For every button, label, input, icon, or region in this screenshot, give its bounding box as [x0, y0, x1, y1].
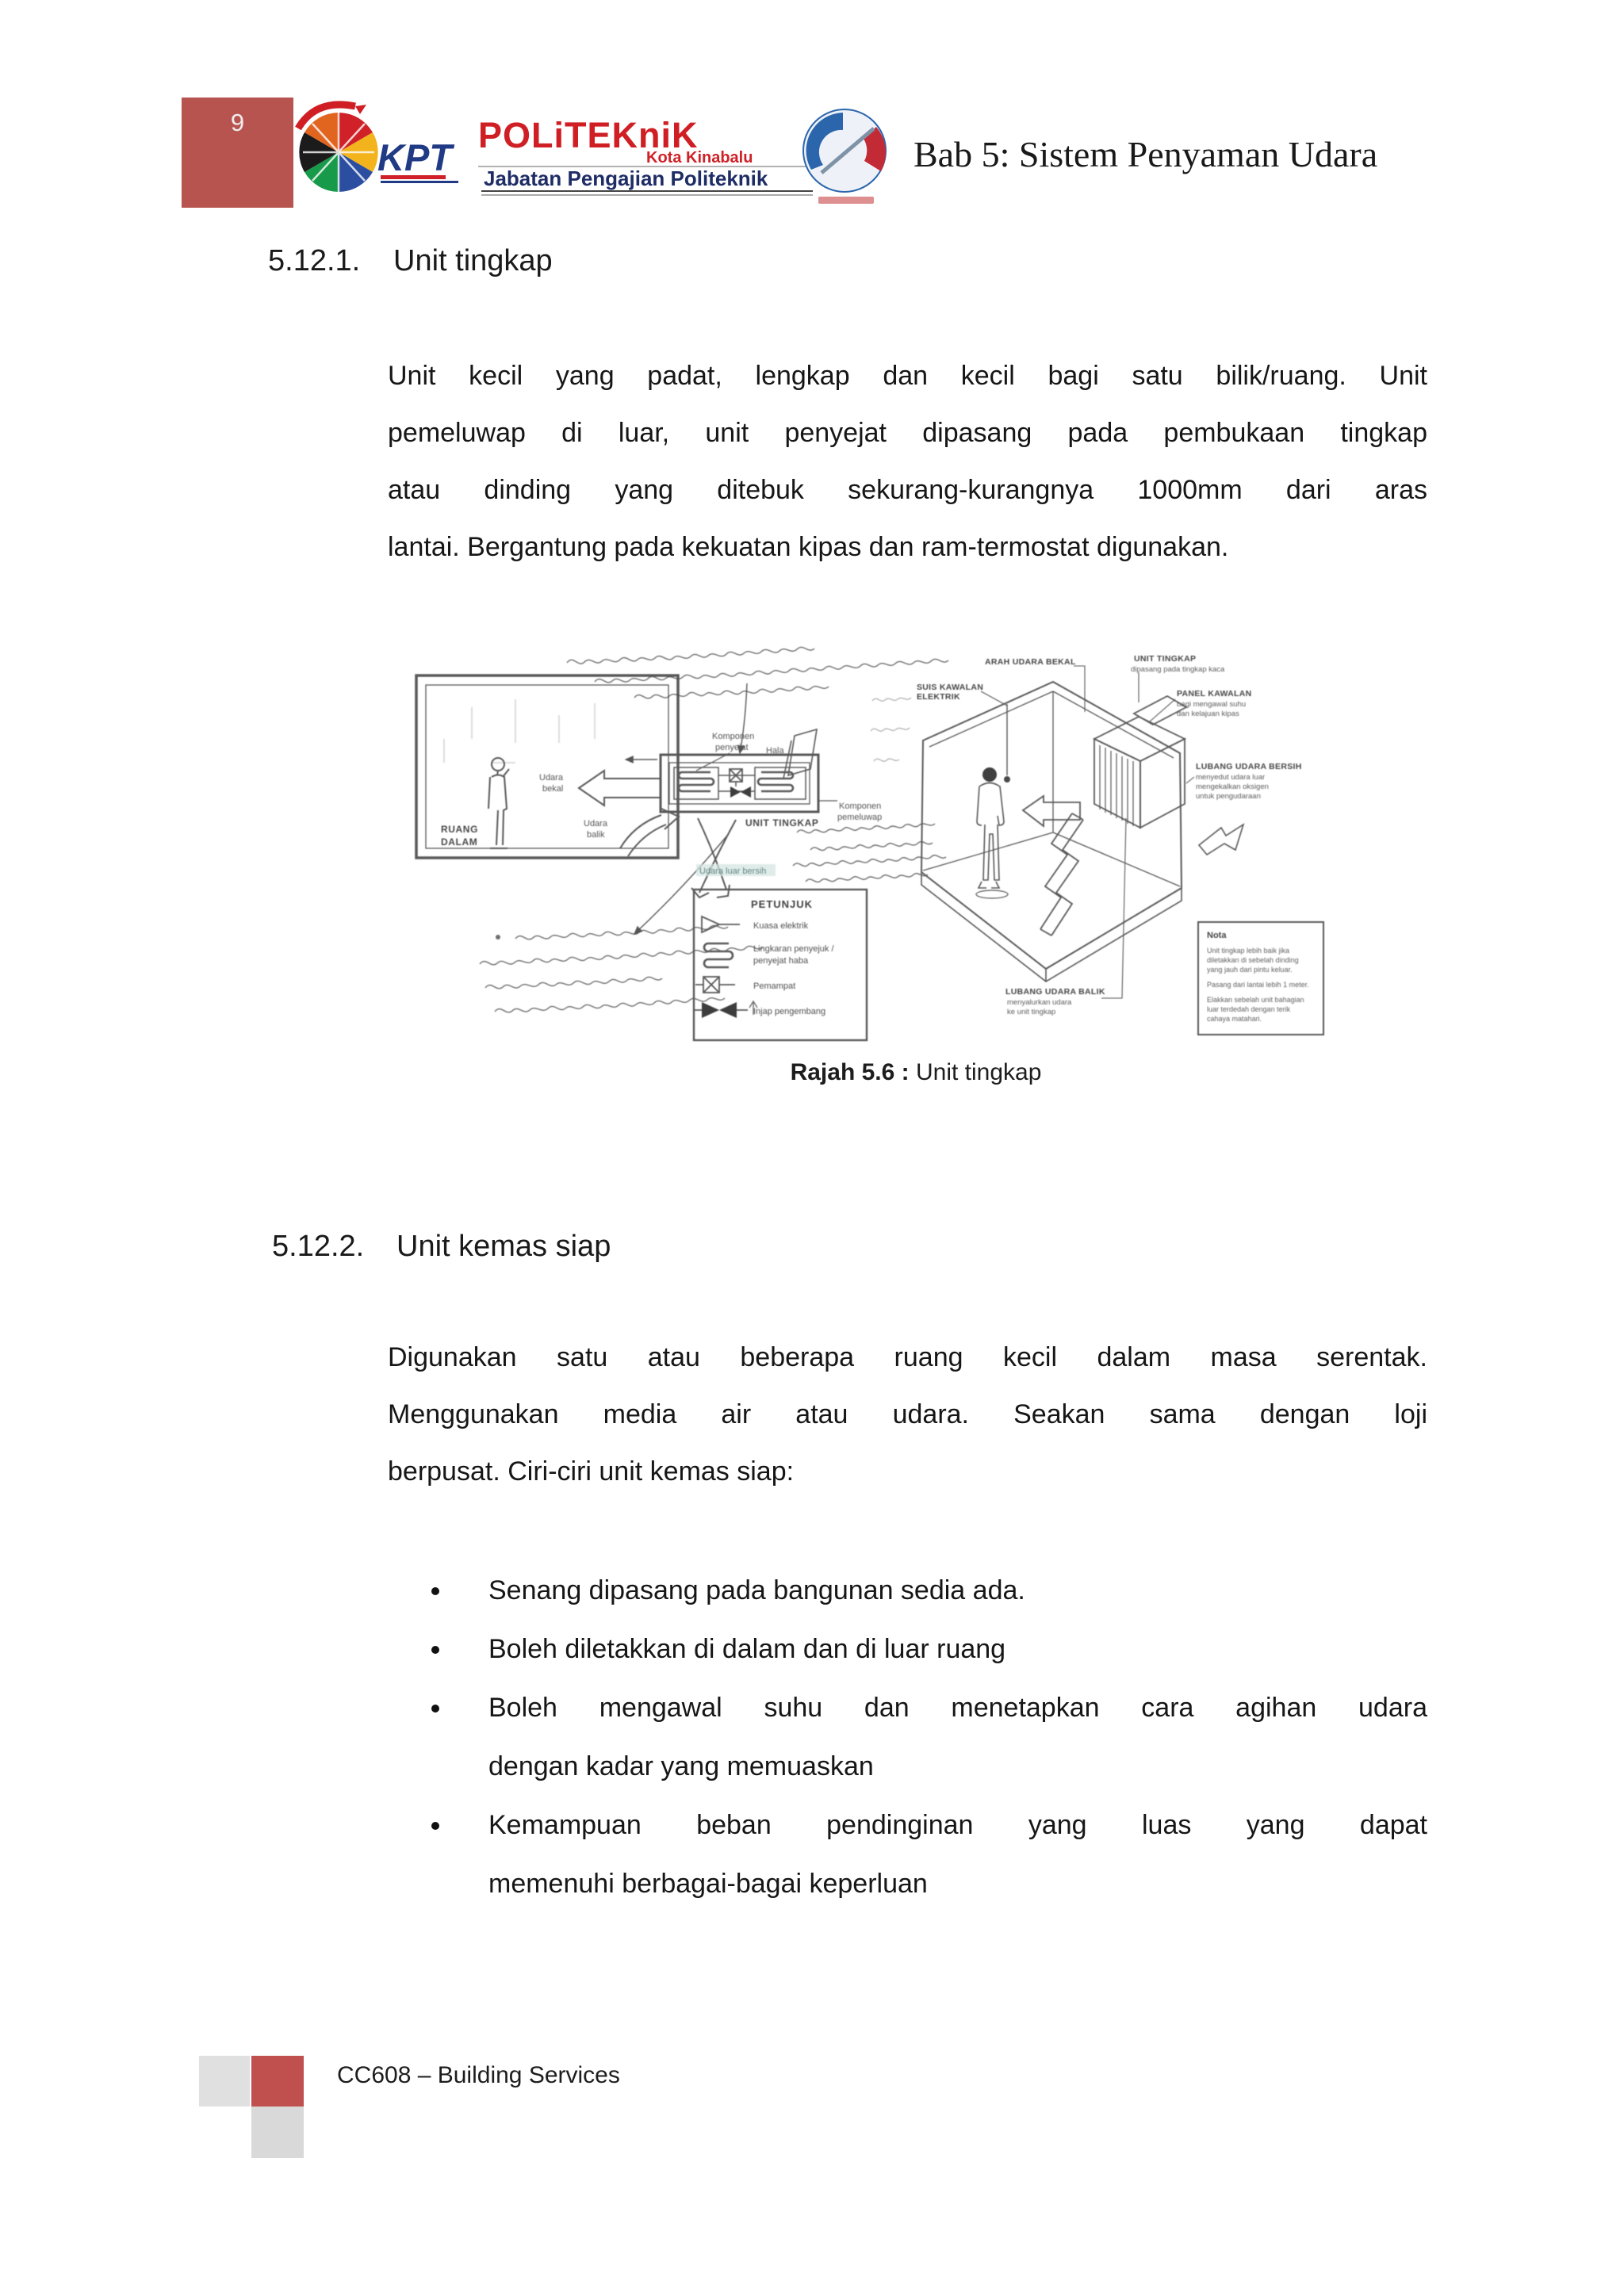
- evaporator-label-1: Komponen: [712, 732, 754, 741]
- bullet-text: Senang dipasang pada bangunan sedia ada.: [488, 1561, 1427, 1620]
- lubang-bersih-label-2: menyedut udara luar: [1196, 773, 1265, 782]
- figure-caption: Rajah 5.6 : Unit tingkap: [389, 1059, 1443, 1094]
- legend-item-3: Pemampat: [753, 982, 795, 991]
- unit-tingkap-diagram: RUANG DALAM: [396, 620, 1499, 1064]
- kpt-logo: KPT: [377, 136, 458, 183]
- hala-label: Hala: [766, 746, 785, 756]
- arah-udara-bekal-label: ARAH UDARA BEKAL: [985, 657, 1076, 667]
- legend-item-1: Kuasa elektrik: [753, 921, 809, 931]
- fresh-air-arrow: [1199, 825, 1243, 855]
- list-item: Boleh mengawal suhu dan menetapkan cara …: [430, 1678, 1427, 1796]
- legend-item-4: Injap pengembang: [753, 1007, 825, 1016]
- annotation-leader-arrow: [634, 836, 727, 934]
- figure-caption-label: Rajah 5.6 :: [791, 1059, 910, 1085]
- bullet-dot: [431, 1705, 439, 1712]
- panel-kawalan-label-3: dan kelajuan kipas: [1177, 710, 1239, 718]
- unit-tingkap-label: UNIT TINGKAP: [745, 817, 819, 828]
- lubang-bersih-label-3: mengekalkan oksigen: [1196, 783, 1269, 791]
- kpt-text: KPT: [377, 136, 455, 178]
- chapter-title: Bab 5: Sistem Penyaman Udara: [913, 133, 1377, 175]
- condenser-label-1: Komponen: [839, 802, 881, 811]
- paragraph-unit-tingkap: Unit kecil yang padat, lengkap dan kecil…: [388, 347, 1427, 576]
- paragraph-line: lantai. Bergantung pada kekuatan kipas d…: [388, 519, 1427, 576]
- nota-title: Nota: [1207, 931, 1227, 940]
- expansion-valve-legend-icon: [694, 1002, 748, 1018]
- supply-air-label-2: bekal: [542, 784, 563, 794]
- legend-item-2a: Lingkaran penyejuk /: [753, 944, 834, 954]
- window-unit-section: [661, 755, 818, 812]
- room-label-line2: DALAM: [441, 836, 477, 848]
- nota-line: diletakkan di sebelah dinding: [1207, 956, 1299, 964]
- suis-kawalan-label-1: SUIS KAWALAN: [917, 683, 983, 692]
- legend-title: PETUNJUK: [751, 898, 813, 910]
- nota-line: Elakkan sebelah unit bahagian: [1207, 996, 1304, 1004]
- room-label-line1: RUANG: [441, 824, 478, 835]
- page-number: 9: [182, 109, 293, 137]
- paragraph-line: Menggunakan media air atau udara. Seakan…: [388, 1386, 1427, 1443]
- electric-power-icon: [702, 916, 740, 932]
- unit-tingkap-iso-label-1: UNIT TINGKAP: [1134, 654, 1196, 664]
- section-view-room: RUANG DALAM: [416, 675, 678, 858]
- bullet-text: Boleh mengawal suhu dan menetapkan cara …: [488, 1678, 1427, 1737]
- person-figure-right: [976, 767, 1008, 898]
- iso-supply-arrow: [1023, 796, 1080, 826]
- window-unit-iso: [1094, 696, 1186, 828]
- section-heading-5-12-1: 5.12.1. Unit tingkap: [268, 244, 823, 285]
- section-title: Unit kemas siap: [396, 1230, 611, 1264]
- return-air-label-2: balik: [587, 830, 605, 840]
- institution-logos: KPT POLiTEKniK Kota Kinabalu Jabatan Pen…: [285, 97, 959, 228]
- lubang-bersih-label-4: untuk pengudaraan: [1196, 792, 1261, 801]
- crossing-ducts: [691, 818, 736, 897]
- evaporator-label-2: penyejat: [715, 743, 749, 752]
- return-zigzag-duct: [1040, 813, 1083, 936]
- paragraph-line: Digunakan satu atau beberapa ruang kecil…: [388, 1329, 1427, 1386]
- nota-line: Unit tingkap lebih baik jika: [1207, 947, 1289, 955]
- fresh-air-label: Udara luar bersih: [699, 867, 766, 876]
- lubang-balik-label-1: LUBANG UDARA BALIK: [1005, 987, 1105, 997]
- list-item: Senang dipasang pada bangunan sedia ada.: [430, 1561, 1427, 1620]
- unit-tingkap-iso-label-2: dipasang pada tingkap kaca: [1131, 665, 1225, 674]
- section-number: 5.12.1.: [268, 244, 360, 278]
- kpt-globe-icon: [298, 105, 378, 192]
- return-air-label-1: Udara: [584, 819, 608, 828]
- nota-line: Pasang dari lantai lebih 1 meter.: [1207, 981, 1309, 989]
- bullet-text-continued: dengan kadar yang memuaskan: [488, 1737, 1427, 1796]
- figure-caption-title: Unit tingkap: [916, 1059, 1041, 1085]
- header-logo-block: KPT POLiTEKniK Kota Kinabalu Jabatan Pen…: [285, 97, 959, 228]
- lubang-balik-label-2: menyalurkan udara: [1007, 998, 1072, 1007]
- faculty-emblem-icon: [803, 109, 886, 204]
- bullet-dot: [431, 1646, 439, 1654]
- page-number-box: 9: [182, 98, 293, 208]
- legend-item-2b: penyejat haba: [753, 956, 809, 966]
- nota-line: cahaya matahari.: [1207, 1015, 1262, 1023]
- footer-course-code: CC608 – Building Services: [337, 2060, 620, 2091]
- suis-kawalan-label-2: ELEKTRIK: [917, 692, 960, 702]
- list-item: Kemampuan beban pendinginan yang luas ya…: [430, 1796, 1427, 1913]
- jabatan-text: Jabatan Pengajian Politeknik: [484, 166, 768, 190]
- kota-kinabalu-text: Kota Kinabalu: [646, 149, 753, 166]
- nota-line: luar terdedah dengan terik: [1207, 1005, 1291, 1013]
- politeknik-logo: POLiTEKniK Kota Kinabalu Jabatan Pengaji…: [478, 115, 813, 195]
- evaporator-coil-icon: [679, 772, 714, 791]
- bullet-dot: [431, 1587, 439, 1595]
- coil-icon: [704, 943, 733, 967]
- figure-rajah-5-6: RUANG DALAM: [396, 620, 1499, 1064]
- section-number: 5.12.2.: [272, 1230, 364, 1264]
- lubang-balik-label-3: ke unit tingkap: [1007, 1008, 1055, 1016]
- supply-air-label-1: Udara: [539, 773, 564, 783]
- person-figure-left: [488, 758, 509, 848]
- footer-gray-square-2: [251, 2107, 304, 2158]
- nota-line: yang jauh dari pintu keluar.: [1207, 966, 1293, 974]
- bullet-dot: [431, 1822, 439, 1830]
- paragraph-line: pemeluwap di luar, unit penyejat dipasan…: [388, 404, 1427, 461]
- list-item: Boleh diletakkan di dalam dan di luar ru…: [430, 1620, 1427, 1678]
- footer-gray-square-1: [199, 2056, 250, 2107]
- bullet-text: Kemampuan beban pendinginan yang luas ya…: [488, 1796, 1427, 1854]
- paragraph-line: Unit kecil yang padat, lengkap dan kecil…: [388, 347, 1427, 404]
- lubang-bersih-label-1: LUBANG UDARA BERSIH: [1196, 762, 1302, 771]
- panel-kawalan-label-1: PANEL KAWALAN: [1177, 689, 1252, 698]
- feature-bullet-list: Senang dipasang pada bangunan sedia ada.…: [430, 1561, 1427, 1913]
- bullet-text: Boleh diletakkan di dalam dan di luar ru…: [488, 1620, 1427, 1678]
- supply-air-arrow: [579, 771, 661, 806]
- return-air-arrow: [620, 809, 679, 856]
- panel-kawalan-label-2: bagi mengawal suhu: [1177, 700, 1246, 709]
- condenser-label-2: pemeluwap: [837, 813, 882, 822]
- paragraph-line: berpusat. Ciri-ciri unit kemas siap:: [388, 1443, 1427, 1500]
- section-title: Unit tingkap: [393, 244, 553, 278]
- expansion-valve-icon: [730, 786, 751, 798]
- section-heading-5-12-2: 5.12.2. Unit kemas siap: [272, 1230, 906, 1271]
- legend-petunjuk: PETUNJUK Kuasa elektrik Lingkaran penyej…: [694, 890, 867, 1040]
- paragraph-line: atau dinding yang ditebuk sekurang-kuran…: [388, 461, 1427, 519]
- nota-box: Nota Unit tingkap lebih baik jika dileta…: [1198, 922, 1323, 1035]
- paragraph-unit-kemas-siap: Digunakan satu atau beberapa ruang kecil…: [388, 1329, 1427, 1500]
- bullet-text-continued: memenuhi berbagai-bagai keperluan: [488, 1854, 1427, 1913]
- footer-red-square: [251, 2056, 304, 2107]
- compressor-legend-icon: [695, 977, 735, 993]
